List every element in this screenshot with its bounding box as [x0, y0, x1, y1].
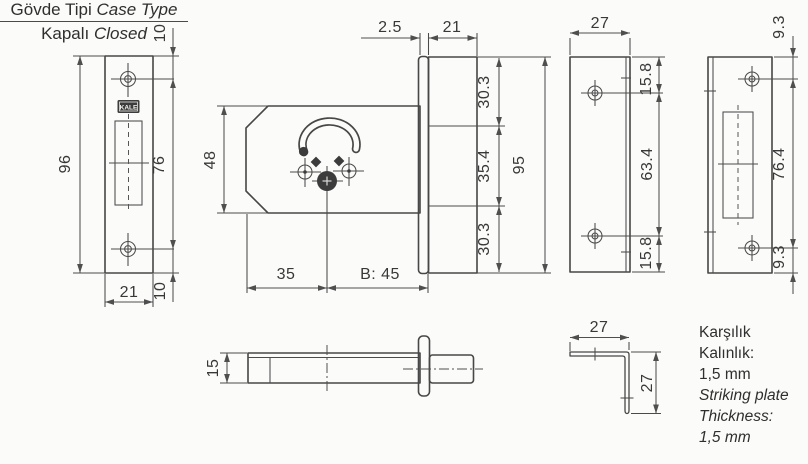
dim-label-10-bottom: 10: [152, 282, 169, 301]
screw-hole: [738, 235, 798, 261]
dim-label-63-4: 63.4: [639, 147, 656, 180]
cam-detail: [311, 157, 322, 168]
dim-label-48: 48: [202, 151, 219, 170]
view-angle-bracket: 27 27: [570, 319, 661, 414]
dimension-21-bolt: 21: [429, 19, 477, 56]
case-value: Kapalı Closed: [0, 24, 188, 44]
dim-label-15-8-top: 15.8: [638, 62, 655, 95]
note-line-tr-3: 1,5 mm: [699, 364, 789, 385]
dim-label-27-height: 27: [639, 374, 656, 393]
dim-label-15-8-bottom: 15.8: [638, 236, 655, 269]
dimension-2-5: 2.5: [361, 19, 429, 55]
lever-pivot: [299, 147, 308, 156]
case-type-en: Case Type: [97, 0, 178, 19]
dimension-15: 15: [205, 353, 247, 383]
dim-label-9-3-top: 9.3: [771, 15, 788, 39]
cam-detail: [334, 156, 345, 167]
dim-label-21-bolt: 21: [443, 19, 462, 36]
angle-bracket-outline: [570, 352, 629, 414]
divider-line: [0, 21, 188, 22]
view-striker-front: 9.3 76.4 9.3: [704, 15, 798, 294]
screw-hole: [111, 63, 174, 97]
dim-label-21: 21: [120, 284, 139, 301]
dimension-27-width: 27: [570, 15, 630, 55]
view-faceplate-front: KALE 96 1: [57, 24, 179, 307]
dim-label-76: 76: [151, 156, 168, 175]
striker-front-outline: [708, 57, 772, 273]
screw-hole: [738, 66, 798, 92]
striker-plate-note: Karşılık Kalınlık: 1,5 mm Striking plate…: [699, 322, 789, 448]
dim-label-15: 15: [205, 359, 222, 378]
dimension-27-top: 27: [570, 319, 629, 351]
technical-drawing-page: { "drawing": { "brand": "KALE", "facepla…: [0, 0, 808, 464]
dim-label-27: 27: [591, 15, 610, 32]
dimension-35-b45: 35 B: 45: [247, 214, 428, 293]
view-lock-case: 48 2.5 21 30.3 35.4 30.3: [202, 19, 551, 293]
dimension-48: 48: [202, 106, 267, 213]
dim-label-2-5: 2.5: [378, 19, 402, 36]
dim-label-96: 96: [57, 155, 74, 174]
striker-side-outline: [570, 57, 630, 272]
note-line-tr-1: Karşılık: [699, 322, 789, 343]
bolt-block: [429, 57, 478, 273]
dimension-27-right: 27: [631, 352, 661, 414]
dim-label-30-3-bottom: 30.3: [476, 222, 493, 255]
note-line-en-2: Thickness:: [699, 406, 789, 427]
dimension-9-76-9: 9.3 76.4 9.3: [771, 15, 798, 294]
dim-label-b45: B: 45: [360, 266, 400, 283]
dimension-96: 96: [57, 56, 105, 273]
lock-mechanism: [290, 121, 364, 293]
dim-label-9-3-bottom: 9.3: [771, 245, 788, 269]
note-line-en-3: 1,5 mm: [699, 427, 789, 448]
dimension-10-76-10: 10 76 10: [151, 24, 179, 302]
dim-label-30-3-top: 30.3: [476, 75, 493, 108]
dim-label-27-width: 27: [590, 319, 609, 336]
note-line-tr-2: Kalınlık:: [699, 343, 789, 364]
lock-dimension-drawing: KALE 96 1: [0, 0, 808, 464]
note-line-en-1: Striking plate: [699, 385, 789, 406]
case-type-note: Gövde Tipi Case Type Kapalı Closed: [0, 0, 188, 44]
case-value-tr: Kapalı: [41, 24, 89, 43]
dim-label-76-4: 76.4: [771, 147, 788, 180]
view-case-side: 15: [205, 336, 483, 396]
faceplate-slot: [109, 114, 149, 212]
brand-text: KALE: [120, 105, 138, 112]
dim-label-95: 95: [511, 156, 528, 175]
dimension-15-63-15: 15.8 63.4 15.8: [632, 57, 665, 272]
dim-label-35-4: 35.4: [476, 149, 493, 182]
screw-hole: [111, 233, 174, 266]
dimension-95: 95: [511, 57, 545, 273]
case-type-title: Gövde Tipi Case Type: [0, 0, 188, 20]
dim-label-35: 35: [277, 266, 296, 283]
case-type-tr: Gövde Tipi: [11, 0, 92, 19]
striker-slot: [718, 105, 758, 225]
dimension-21: 21: [105, 274, 153, 307]
faceplate-outline: [105, 56, 153, 273]
brand-badge: KALE: [118, 100, 140, 113]
case-value-en: Closed: [94, 24, 147, 43]
view-striker-side: 27 15.8 63.4 15.8: [570, 15, 665, 272]
